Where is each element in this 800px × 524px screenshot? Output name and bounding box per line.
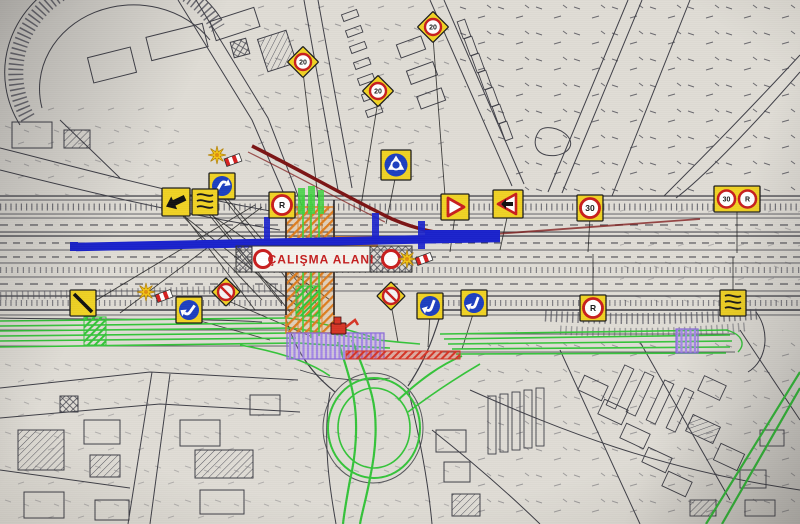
sign-no-parking-south: R	[580, 295, 606, 321]
sign-no-stopping-center	[377, 282, 405, 310]
svg-text:30: 30	[723, 197, 731, 204]
sign-warning-triangle-east-2	[493, 190, 523, 218]
plan-canvas: ÇALIŞMA ALANI 202020R3030RR	[0, 0, 800, 524]
svg-text:20: 20	[429, 25, 437, 32]
sign-pair-speed-no-parking: 30R	[714, 186, 760, 212]
no-entry-ring-right	[383, 251, 400, 268]
barrier-marker-west	[224, 154, 242, 167]
sign-end-of-restriction	[70, 290, 96, 316]
traffic-plan-photo: ÇALIŞMA ALANI 202020R3030RR	[0, 0, 800, 524]
flasher-lamp-center	[398, 250, 416, 268]
sign-speed-limit-30: 30	[577, 195, 603, 221]
sign-keep-left-south-1	[417, 293, 443, 319]
barrier-marker-center	[415, 253, 433, 266]
sign-keep-left-west	[176, 297, 202, 323]
barrier-marker-southwest	[155, 290, 173, 303]
flasher-lamp-west	[208, 146, 226, 164]
svg-text:R: R	[279, 200, 285, 210]
barrier-strip-red	[346, 351, 460, 359]
sign-roundabout	[381, 150, 411, 180]
sign-double-bend-east	[720, 290, 746, 316]
flasher-lamp-southwest	[137, 283, 155, 301]
sign-lane-merge-west	[162, 188, 190, 216]
svg-text:30: 30	[585, 203, 595, 213]
sign-no-parking-center: R	[269, 192, 295, 218]
svg-text:R: R	[745, 197, 750, 204]
sign-warning-triangle-east-1	[441, 194, 469, 220]
sign-no-stopping-west	[212, 278, 240, 306]
svg-text:20: 20	[299, 60, 307, 67]
sign-keep-left-south-2	[461, 290, 487, 316]
work-area-label-box: ÇALIŞMA ALANI	[236, 246, 412, 272]
svg-text:R: R	[590, 303, 596, 313]
work-area-label: ÇALIŞMA ALANI	[268, 253, 375, 267]
svg-text:20: 20	[374, 89, 382, 96]
sign-double-bend-west	[192, 189, 218, 215]
